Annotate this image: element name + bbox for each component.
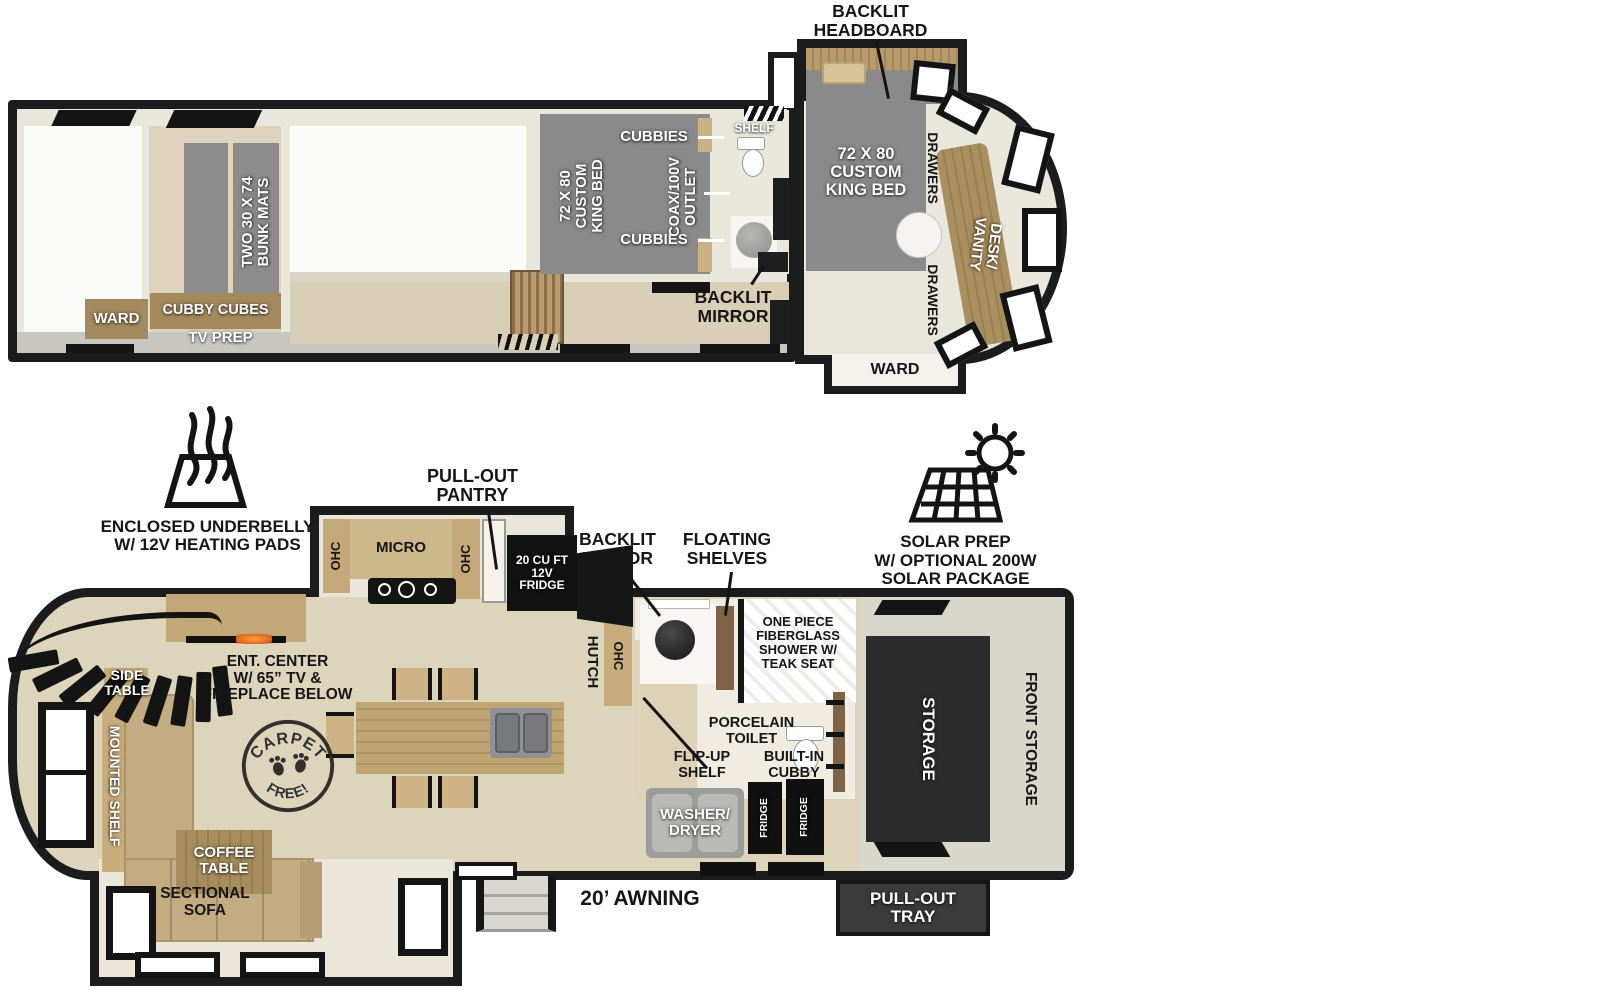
carpet-free-stamp: CARPET FREE! — [240, 718, 336, 814]
drawers-bottom-label: DRAWERS — [923, 258, 941, 342]
shower-label: ONE PIECE FIBERGLASS SHOWER W/ TEAK SEAT — [744, 606, 852, 680]
cubby-rung — [826, 700, 844, 705]
sectional-sofa-label: SECTIONAL SOFA — [140, 884, 270, 922]
cap-window — [1022, 208, 1062, 272]
heating-pads-icon — [148, 405, 263, 513]
bottom-wall-window — [455, 862, 517, 880]
burner — [398, 581, 415, 598]
svg-text:FREE!: FREE! — [264, 780, 313, 802]
floor-plan-upper: TWO 30 X 74 BUNK MATS WARD CUBBY CUBES T… — [0, 0, 1100, 400]
fridge-small-label: FRIDGE — [758, 788, 772, 848]
hutch-label: HUTCH — [583, 616, 601, 708]
skylight — [51, 110, 136, 126]
window — [774, 58, 794, 108]
micro-label: MICRO — [350, 536, 452, 560]
loft-wall-band — [290, 272, 526, 282]
slide-window-bottom — [240, 952, 325, 978]
step-edge — [484, 894, 548, 897]
shelf-hatch — [744, 106, 784, 121]
built-in-cubby-label: BUILT-IN CUBBY — [748, 748, 840, 784]
cubby-rung — [826, 732, 844, 737]
fridge-small-label: FRIDGE — [798, 787, 812, 847]
skylight — [166, 110, 262, 128]
cubbies-top-pointer — [698, 136, 724, 139]
loft-room-floor — [290, 126, 526, 272]
ent-center-label: ENT. CENTER W/ 65” TV & FIREPLACE BELOW — [190, 648, 365, 710]
floor-plan-lower: ENCLOSED UNDERBELLY W/ 12V HEATING PADS … — [0, 400, 1600, 990]
bunk-mat — [184, 143, 228, 301]
dining-chair — [392, 776, 432, 808]
solar-callout: SOLAR PREP W/ OPTIONAL 200W SOLAR PACKAG… — [848, 528, 1063, 594]
underbelly-callout: ENCLOSED UNDERBELLY W/ 12V HEATING PADS — [85, 513, 330, 559]
bath-sink — [655, 620, 695, 660]
front-ward-label: WARD — [832, 356, 958, 384]
drawers-top-label: DRAWERS — [923, 126, 941, 210]
storage-label: STORAGE — [917, 674, 939, 804]
entry-steps — [476, 876, 556, 932]
shelf-label: SHELF — [727, 121, 781, 136]
pillow — [822, 62, 866, 84]
toilet-tank — [737, 137, 765, 150]
ohc-left-label: OHC — [328, 526, 344, 586]
tv-prep-label: TV PREP — [168, 328, 273, 348]
stairs — [498, 334, 558, 350]
backlit-mirror-callout: BACKLIT MIRROR — [565, 526, 670, 572]
ward-rear-label: WARD — [85, 302, 148, 336]
cubby-cubes-label: CUBBY CUBES — [148, 296, 283, 326]
bottom-wall-window — [700, 344, 780, 353]
fireplace-flame — [236, 634, 272, 644]
mounted-shelf-label: MOUNTED SHELF — [105, 707, 123, 865]
awning-label: 20’ AWNING — [560, 884, 720, 914]
burner — [378, 583, 391, 596]
step-edge — [484, 912, 548, 915]
backlit-mirror — [648, 599, 710, 609]
cubbies-bottom-pointer — [698, 239, 724, 242]
floating-shelves — [716, 606, 734, 690]
bottom-wall-mark — [700, 862, 756, 876]
floorplan-canvas: TWO 30 X 74 BUNK MATS WARD CUBBY CUBES T… — [0, 0, 1600, 990]
bath-cabinet — [773, 178, 789, 240]
bottom-wall-window — [560, 344, 630, 353]
slide-window-right — [398, 878, 448, 956]
sofa-armrest — [300, 862, 322, 938]
storage-vent — [874, 842, 951, 857]
coax-pointer — [704, 192, 730, 195]
dining-chair — [438, 776, 478, 808]
burner — [424, 583, 437, 596]
bottom-wall-window — [66, 344, 134, 353]
ohc-hutch-label: OHC — [610, 626, 626, 686]
main-fridge-label: 20 CU FT 12V FRIDGE — [507, 541, 577, 605]
front-storage-label: FRONT STORAGE — [1020, 654, 1040, 824]
vanity-stool — [896, 212, 942, 258]
dining-chair — [438, 668, 478, 700]
paw-print-icon — [269, 753, 309, 777]
carpet-stamp-bottom-text: FREE! — [264, 780, 313, 802]
pullout-pantry-callout: PULL-OUT PANTRY — [395, 462, 550, 510]
bunk-mats-label: TWO 30 X 74 BUNK MATS — [236, 137, 276, 307]
sink-basin — [495, 713, 520, 753]
storage-vent — [874, 600, 951, 615]
toilet-label: PORCELAIN TOILET — [694, 714, 809, 750]
bottom-wall-mark — [768, 862, 824, 876]
side-table-label: SIDE TABLE — [90, 664, 164, 702]
ohc-right-label: OHC — [458, 529, 474, 589]
window-divider — [46, 770, 86, 775]
dining-chair — [392, 668, 432, 700]
coffee-table-label: COFFEE TABLE — [176, 836, 272, 886]
toilet-bowl — [742, 149, 764, 177]
solar-panel-icon — [900, 418, 1040, 530]
washer-dryer-label: WASHER/ DRYER — [646, 794, 744, 852]
mid-king-bed-label: 72 X 80 CUSTOM KING BED — [554, 121, 610, 271]
coax-outlet-label: COAX/100V OUTLET — [665, 141, 703, 253]
backlit-headboard-callout: BACKLIT HEADBOARD — [798, 0, 943, 42]
left-wall-window — [38, 702, 94, 848]
floating-shelves-callout: FLOATING SHELVES — [672, 526, 782, 572]
upper-backlit-mirror-callout: BACKLIT MIRROR — [678, 285, 788, 329]
pull-out-tray-label: PULL-OUT TRAY — [836, 884, 990, 932]
slide-window-bottom — [135, 952, 220, 978]
wardrobe-hanging — [510, 270, 564, 344]
front-king-bed-label: 72 X 80 CUSTOM KING BED — [806, 140, 926, 206]
sink-basin — [523, 713, 548, 753]
